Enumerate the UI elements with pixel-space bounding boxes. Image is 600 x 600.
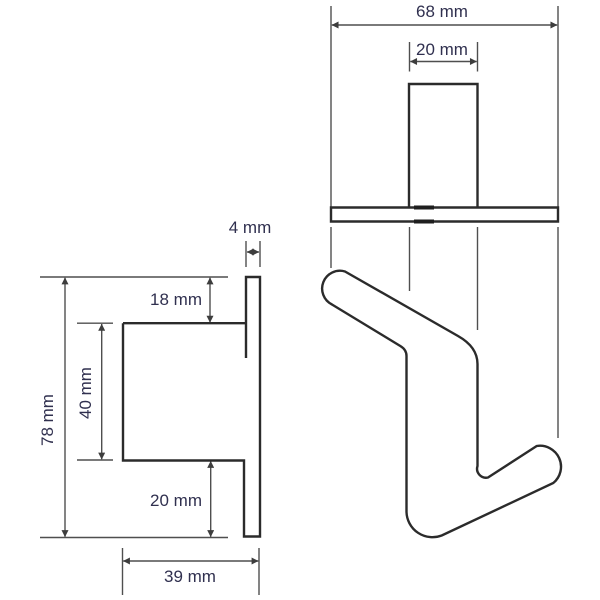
front-view-post <box>409 84 478 208</box>
part-outline-group <box>123 84 561 537</box>
front-view-hook-outline <box>322 271 561 537</box>
dim-label-overall-height: 78 mm <box>38 380 58 460</box>
front-view-plate <box>331 208 558 222</box>
dim-label-thickness: 4 mm <box>200 218 300 238</box>
dim-label-overall-width: 68 mm <box>392 2 492 22</box>
dim-label-top-offset: 18 mm <box>128 290 202 310</box>
plate-joint-marks <box>414 208 434 222</box>
dimension-lines-group <box>40 6 558 595</box>
technical-drawing-svg <box>0 0 600 600</box>
dim-label-bottom-offset: 20 mm <box>128 491 202 511</box>
technical-drawing-canvas: 68 mm 20 mm 4 mm 18 mm 40 mm 78 mm 20 mm… <box>0 0 600 600</box>
dim-label-opening-height: 40 mm <box>76 353 96 433</box>
dim-label-bar-width: 20 mm <box>392 40 492 60</box>
dim-label-depth: 39 mm <box>140 567 240 587</box>
